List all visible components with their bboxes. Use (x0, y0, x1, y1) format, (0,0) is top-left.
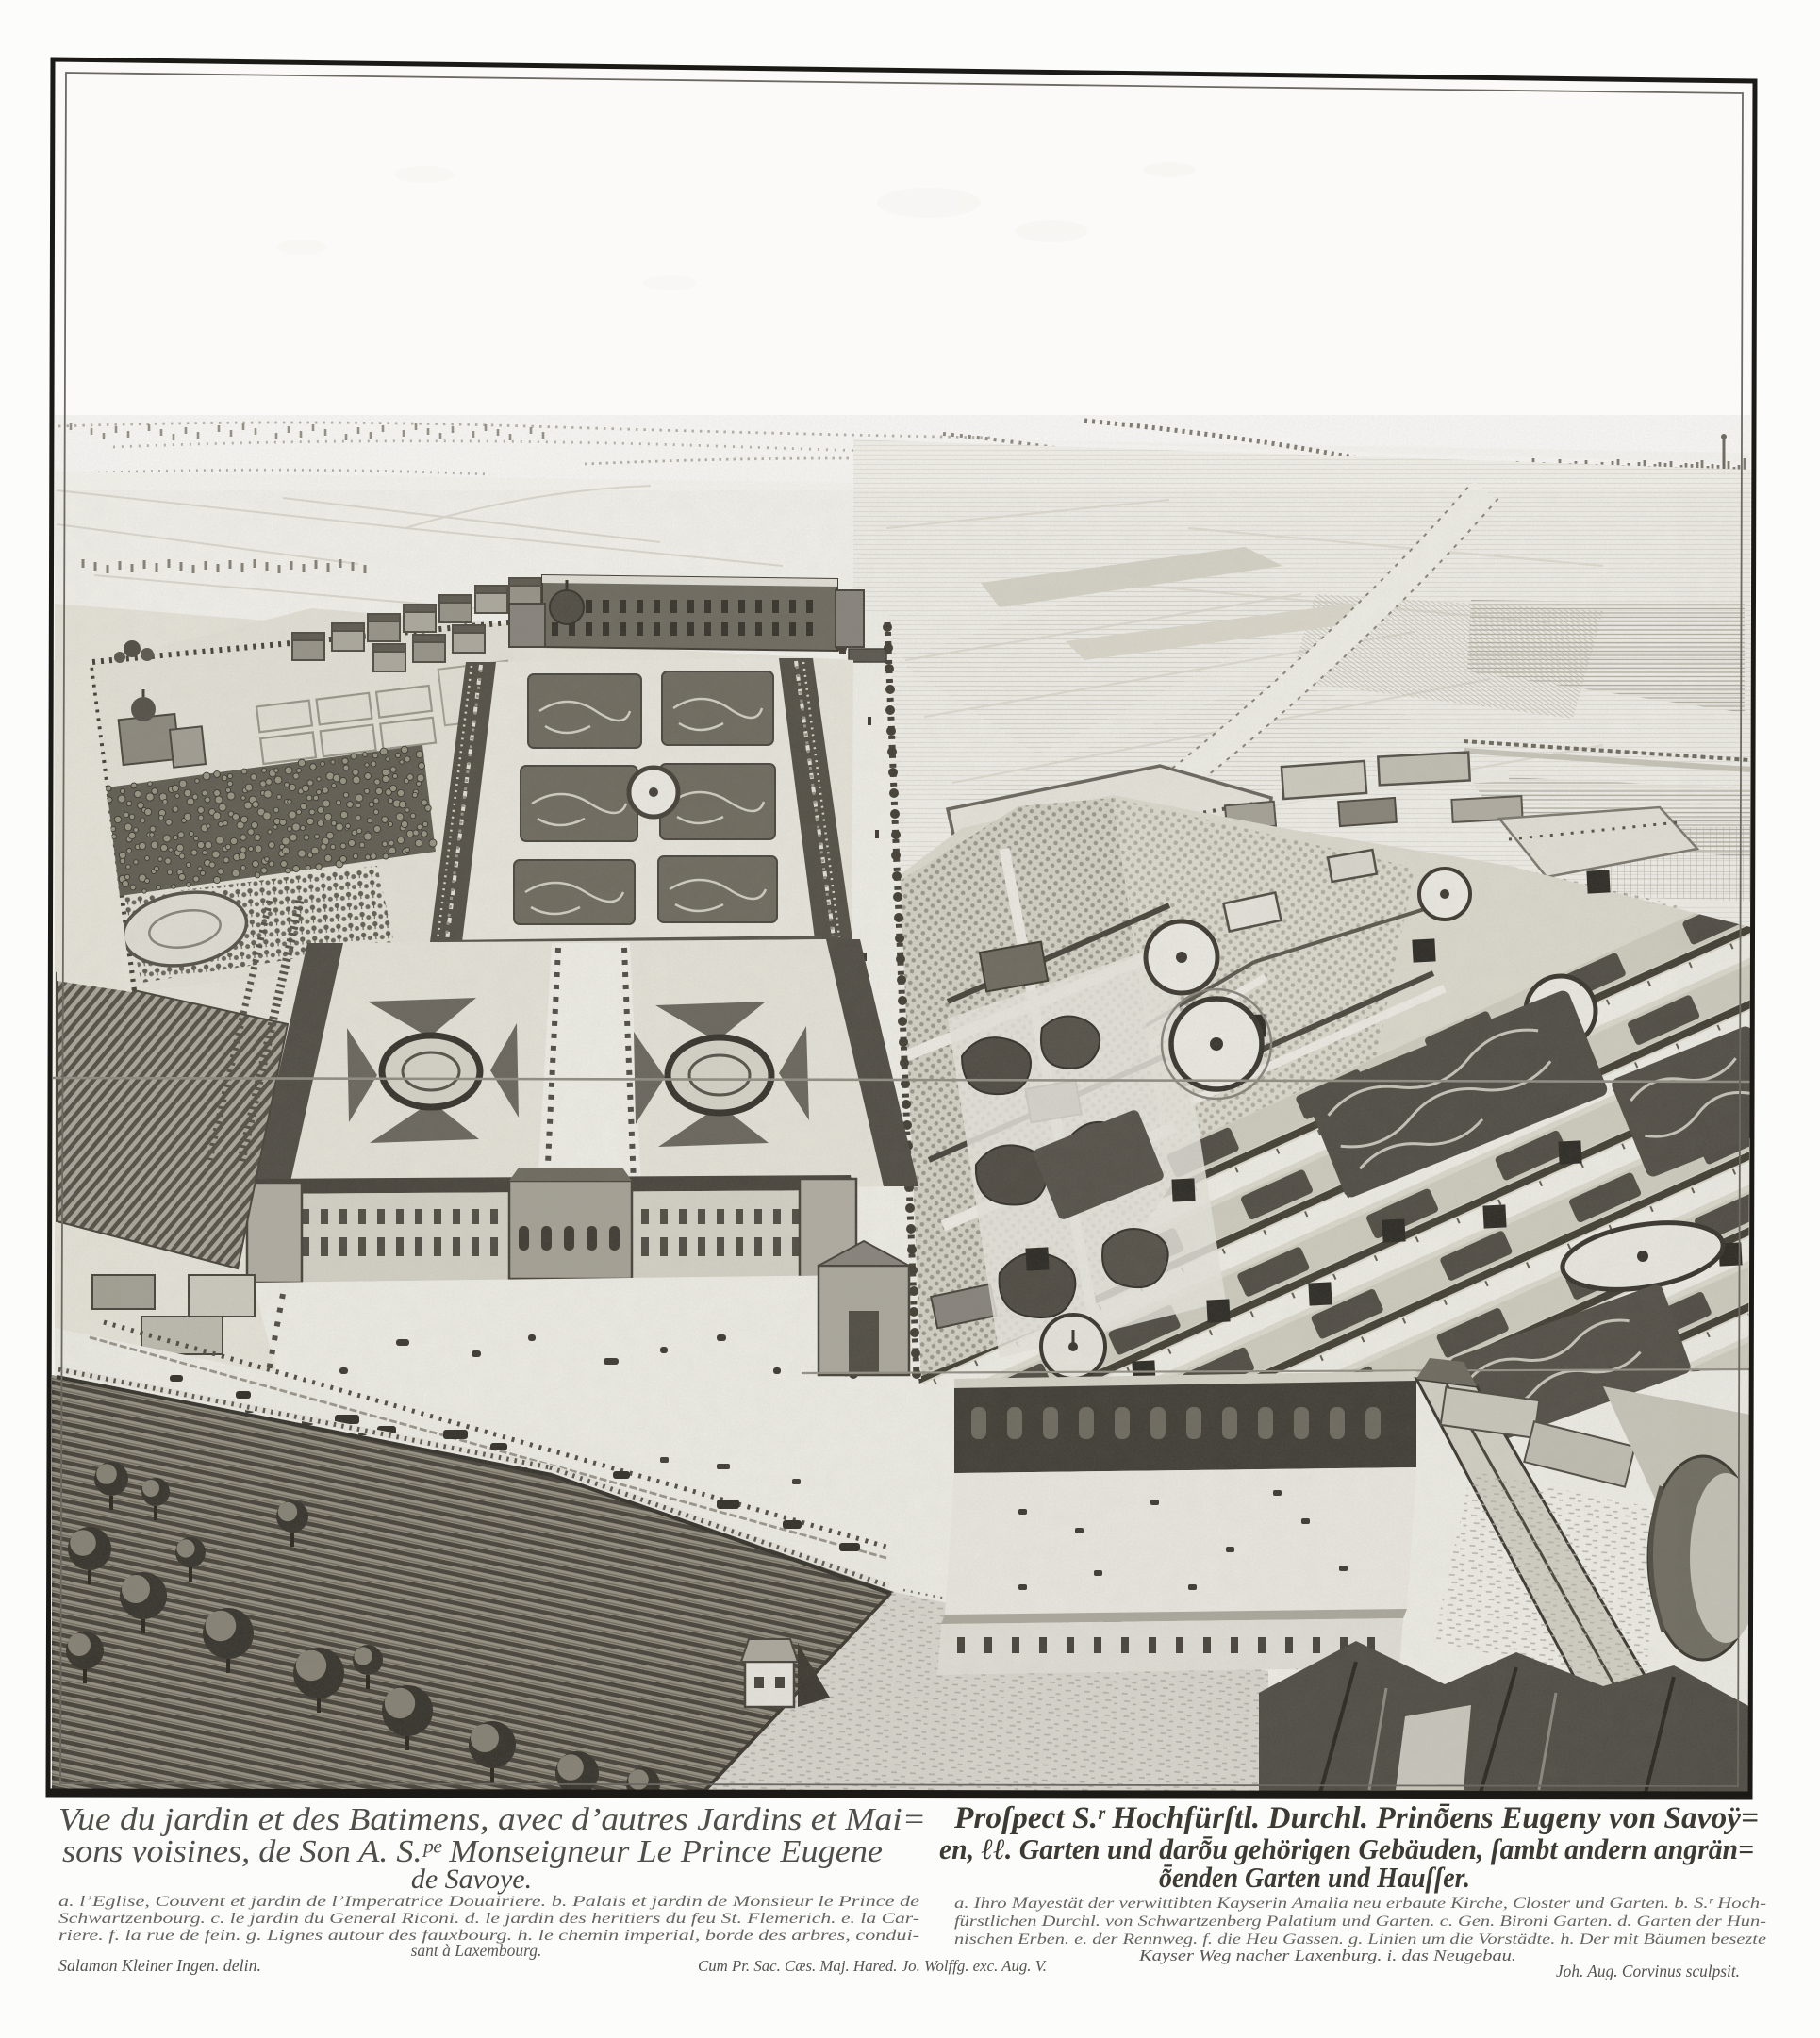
svg-text:nischen Erben. e. der Rennweg.: nischen Erben. e. der Rennweg. f. die He… (954, 1931, 1766, 1947)
svg-text:Salamon Kleiner Ingen. delin.: Salamon Kleiner Ingen. delin. (58, 1956, 261, 1975)
svg-text:Cum Pr. Sac. Cæs. Maj. Hared.: Cum Pr. Sac. Cæs. Maj. Hared. Jo. Wolffg… (698, 1957, 1048, 1975)
svg-text:de Savoye.: de Savoye. (411, 1864, 532, 1895)
svg-text:Vue du jardin et des Batimens,: Vue du jardin et des Batimens, avec d’au… (58, 1802, 926, 1837)
svg-text:sant à Laxembourg.: sant à Laxembourg. (411, 1941, 542, 1960)
svg-text:Proſpect S.ʳ Hochfürſtl. Durch: Proſpect S.ʳ Hochfürſtl. Durchl. Prinȭen… (953, 1801, 1759, 1835)
svg-text:Joh. Aug. Corvinus sculpsit.: Joh. Aug. Corvinus sculpsit. (1556, 1962, 1740, 1980)
svg-text:a. l’Eglise, Couvent et jardin: a. l’Eglise, Couvent et jardin de l’Impe… (58, 1894, 919, 1910)
svg-text:ȭenden Garten und Hauſſer.: ȭenden Garten und Hauſſer. (1159, 1861, 1470, 1894)
svg-text:a. Ihro Mayestät der verwittib: a. Ihro Mayestät der verwittibten Kayser… (954, 1896, 1766, 1912)
svg-text:Schwartzenbourg. c. le jardin: Schwartzenbourg. c. le jardin du General… (58, 1911, 919, 1927)
svg-text:fürstlichen Durchl. von Schwar: fürstlichen Durchl. von Schwartzenberg P… (954, 1914, 1766, 1930)
svg-text:Kayser Weg nacher Laxenburg. i: Kayser Weg nacher Laxenburg. i. das Neug… (1138, 1947, 1516, 1964)
